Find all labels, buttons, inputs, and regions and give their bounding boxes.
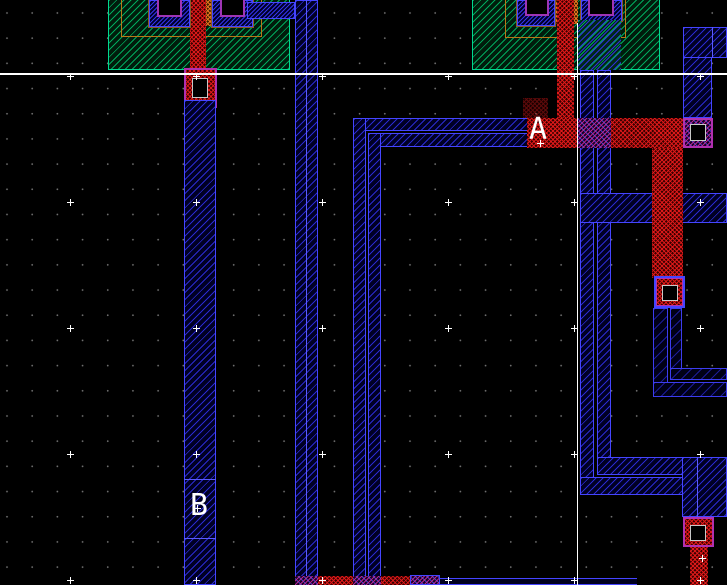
grid-major-cross [571,73,578,80]
contact-cut[interactable] [588,0,614,16]
grid-major-cross [571,199,578,206]
contact-cut[interactable] [525,0,549,16]
grid-major-cross [319,577,326,584]
wire-divider [184,479,216,480]
metal1-jog[interactable] [247,2,295,19]
overlap-red-blue[interactable] [578,118,611,148]
origin-line-horizontal [0,73,727,75]
contact-cut[interactable] [192,78,208,98]
metal1-thin-wire-bottom[interactable] [440,578,637,585]
grid-major-cross [697,73,704,80]
grid-major-cross [319,73,326,80]
grid-major-cross [697,325,704,332]
overlap-red-blue[interactable] [353,576,381,585]
grid-major-cross [67,73,74,80]
metal1-dim-outer-h[interactable] [653,382,727,397]
grid-major-cross [445,577,452,584]
grid-major-cross [193,73,200,80]
grid-major-cross [697,577,704,584]
via-cut[interactable] [690,124,706,141]
grid-major-cross [319,451,326,458]
grid-major-cross [571,325,578,332]
grid-major-cross [699,555,706,562]
poly-strip-left[interactable] [190,0,206,70]
contact-cut[interactable] [220,0,245,17]
label-marker-b [194,505,201,512]
overlap-red-blue[interactable] [295,576,318,585]
poly-strip-right[interactable] [557,0,574,118]
layout-canvas[interactable]: A B [0,0,727,585]
grid-major-cross [445,199,452,206]
via-box-bottom[interactable] [410,575,440,585]
origin-line-vertical [577,23,578,585]
grid-major-cross [67,199,74,206]
grid-major-cross [571,577,578,584]
contact-cut[interactable] [690,525,706,541]
grid-major-cross [445,451,452,458]
grid-major-cross [193,325,200,332]
grid-major-cross [319,325,326,332]
grid-major-cross [193,577,200,584]
red-wire-vertical[interactable] [652,148,683,278]
wire-divider [184,538,216,539]
metal1-topright-wide[interactable] [683,27,727,58]
grid-major-cross [193,199,200,206]
metal1-over-diffusion[interactable] [578,20,621,70]
grid-major-cross [697,199,704,206]
metal1-l-inner-h[interactable] [368,133,528,147]
grid-major-cross [445,325,452,332]
metal1-z-down-block[interactable] [682,457,727,517]
contact-cut[interactable] [157,0,182,17]
grid-major-cross [67,451,74,458]
grid-major-cross [67,577,74,584]
grid-major-cross [571,451,578,458]
wire-divider [712,27,713,58]
grid-major-cross [697,451,704,458]
label-marker-a [537,140,544,147]
contact-cut[interactable] [662,285,678,301]
metal1-l-outer-v[interactable] [353,118,366,585]
metal1-dim-inner-h[interactable] [670,368,727,380]
metal1-l-outer-h[interactable] [353,118,528,131]
metal1-dim-inner-v[interactable] [670,308,682,372]
wire-divider [306,0,307,585]
grid-major-cross [445,73,452,80]
metal1-l-inner-v[interactable] [368,133,381,585]
grid-major-cross [67,325,74,332]
wire-divider [697,457,698,517]
grid-major-cross [319,199,326,206]
metal1-topright-stub[interactable] [683,57,712,118]
grid-major-cross [193,451,200,458]
